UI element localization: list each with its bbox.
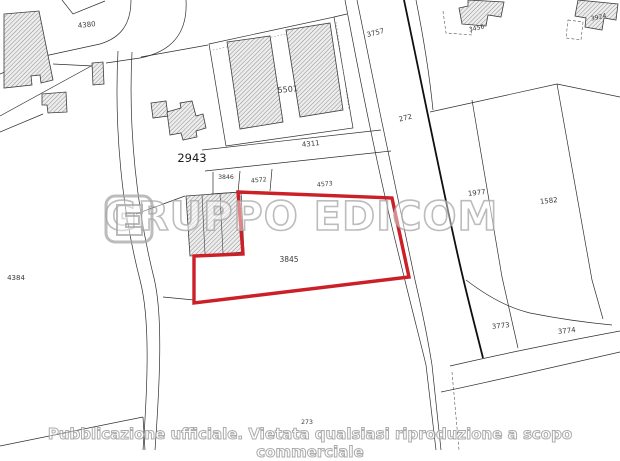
cadastral-map: 4380 3757 3456 3924 5501 4311 2943 3846 … — [0, 0, 620, 450]
parcel-label-3845: 3845 — [279, 255, 298, 264]
parcel-label-4384: 4384 — [7, 274, 25, 282]
parcel-label-2943: 2943 — [177, 151, 206, 165]
parcel-label-273: 273 — [301, 419, 313, 426]
parcel-label-5501: 5501 — [277, 84, 298, 95]
parcel-label-3846: 3846 — [218, 174, 234, 181]
